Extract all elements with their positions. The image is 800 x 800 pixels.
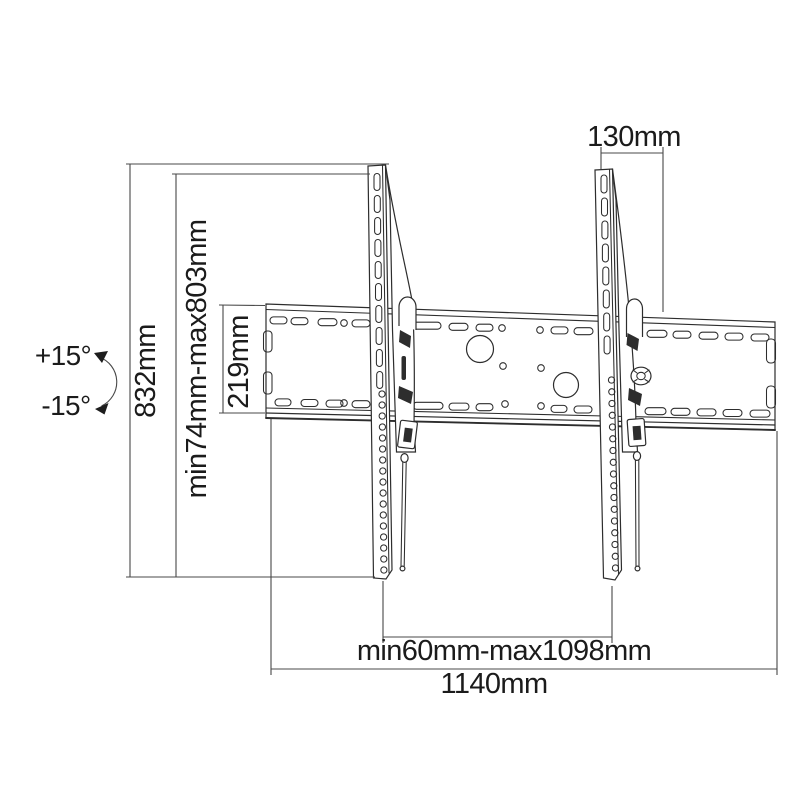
left-clamp-hardware bbox=[397, 420, 417, 571]
rod-tip bbox=[635, 566, 640, 571]
label-1140mm: 1140mm bbox=[440, 668, 547, 700]
right-hook bbox=[627, 299, 643, 337]
label-height-range: min74mm-max803mm bbox=[181, 220, 213, 499]
label-832mm: 832mm bbox=[130, 324, 162, 418]
label-tilt-plus: +15° bbox=[35, 340, 91, 371]
label-width-range: min60mm-max1098mm bbox=[357, 635, 651, 667]
rod-eyelet bbox=[633, 452, 640, 461]
tilt-arc bbox=[94, 351, 117, 415]
wall-plate bbox=[264, 304, 776, 430]
label-tilt-minus: -15° bbox=[41, 390, 90, 421]
left-hook bbox=[399, 297, 416, 330]
label-130mm: 130mm bbox=[587, 121, 681, 153]
tilt-arrow-down-icon bbox=[95, 403, 109, 415]
dim-width-range bbox=[383, 581, 612, 643]
label-219mm: 219mm bbox=[223, 315, 255, 409]
tilt-knob bbox=[631, 367, 651, 385]
left-rail bbox=[368, 165, 392, 579]
tv-mount-technical-drawing: 130mm 832mm min74mm-max803mm 219mm +15° … bbox=[0, 0, 800, 800]
rod-tip bbox=[400, 566, 405, 571]
rod-eyelet bbox=[401, 454, 408, 463]
